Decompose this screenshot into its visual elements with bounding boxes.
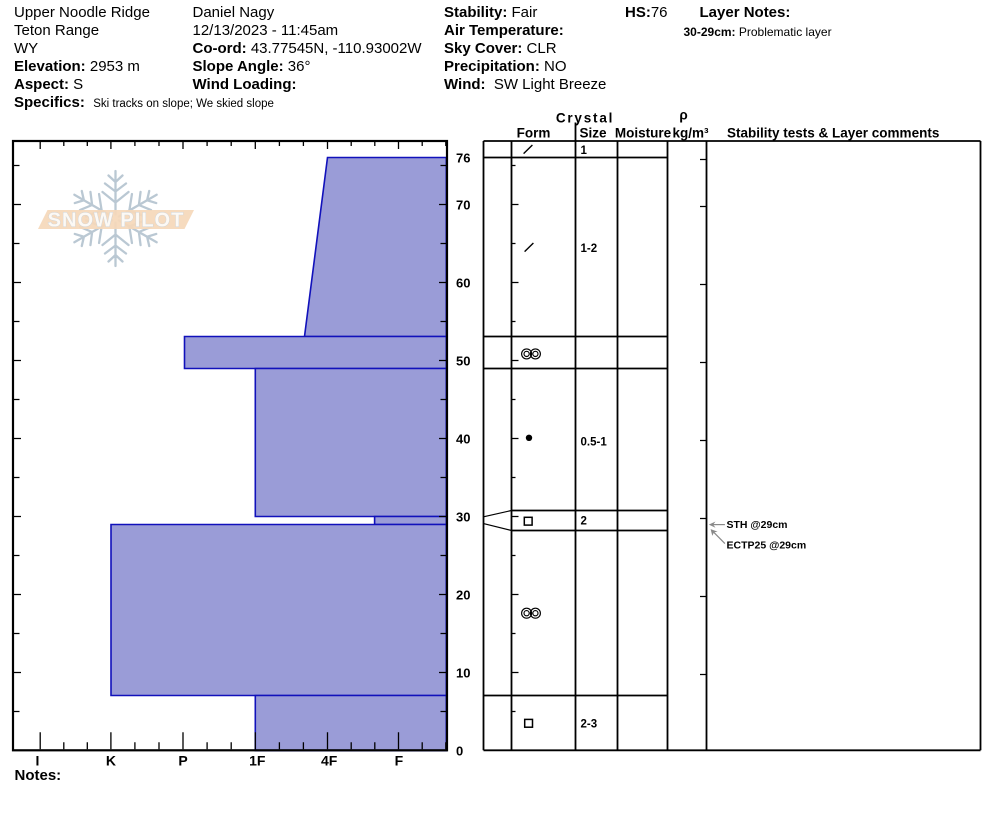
svg-text:0: 0 xyxy=(456,743,463,758)
svg-text:2: 2 xyxy=(581,516,587,528)
svg-text:1F: 1F xyxy=(249,753,266,769)
svg-text:Form: Form xyxy=(517,126,551,141)
svg-text:Notes:: Notes: xyxy=(15,767,62,784)
svg-text:ρ: ρ xyxy=(679,108,687,123)
svg-text:2-3: 2-3 xyxy=(581,718,598,730)
svg-text:Crystal: Crystal xyxy=(556,111,614,126)
svg-text:STH @29cm: STH @29cm xyxy=(727,519,788,531)
svg-text:1: 1 xyxy=(581,145,588,157)
svg-text:1-2: 1-2 xyxy=(581,243,598,255)
svg-text:60: 60 xyxy=(456,275,470,290)
svg-text:F: F xyxy=(395,753,404,769)
svg-text:4F: 4F xyxy=(321,753,338,769)
svg-text:Moisture: Moisture xyxy=(615,126,672,141)
svg-text:P: P xyxy=(178,753,187,769)
svg-text:50: 50 xyxy=(456,353,470,368)
svg-text:Size: Size xyxy=(579,126,607,141)
svg-text:K: K xyxy=(106,753,116,769)
svg-text:10: 10 xyxy=(456,665,470,680)
svg-text:kg/m³: kg/m³ xyxy=(672,126,709,141)
svg-text:ECTP25 @29cm: ECTP25 @29cm xyxy=(727,540,807,552)
svg-text:30: 30 xyxy=(456,509,470,524)
svg-text:20: 20 xyxy=(456,587,470,602)
svg-text:40: 40 xyxy=(456,431,470,446)
svg-text:76: 76 xyxy=(456,151,470,166)
svg-text:70: 70 xyxy=(456,197,470,212)
svg-text:SNOW PILOT: SNOW PILOT xyxy=(48,210,185,232)
svg-text:0.5-1: 0.5-1 xyxy=(581,436,608,448)
svg-text:Stability tests & Layer commen: Stability tests & Layer comments xyxy=(727,126,939,141)
